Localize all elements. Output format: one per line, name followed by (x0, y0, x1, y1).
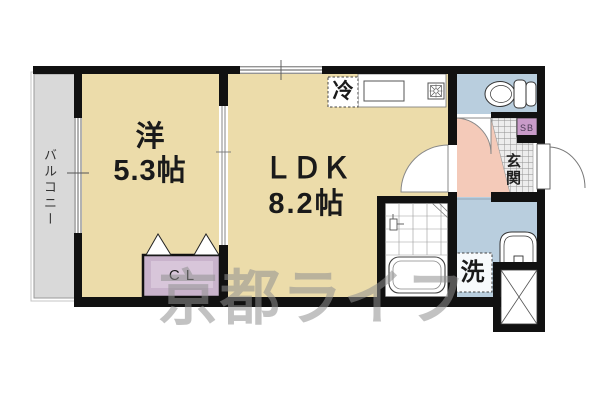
stove-icon (428, 83, 444, 99)
shoebox (517, 118, 537, 137)
kitchen-sink-icon (364, 81, 404, 101)
washer-space (453, 253, 492, 292)
refrigerator-space (328, 77, 358, 107)
entrance-door-leaf (537, 144, 550, 189)
balcony-floor (34, 74, 75, 298)
closet-box-inner (151, 261, 213, 288)
floorplan-drawing (0, 0, 600, 400)
washbasin-icon (500, 232, 537, 264)
floorplan: バルコニー 洋 5.3帖 ＬＤＫ 8.2帖 冷 洗 CL SB 玄関 京都ライフ (0, 0, 600, 400)
bathtub-icon (389, 257, 445, 293)
entrance-door-arc-icon (550, 147, 585, 188)
